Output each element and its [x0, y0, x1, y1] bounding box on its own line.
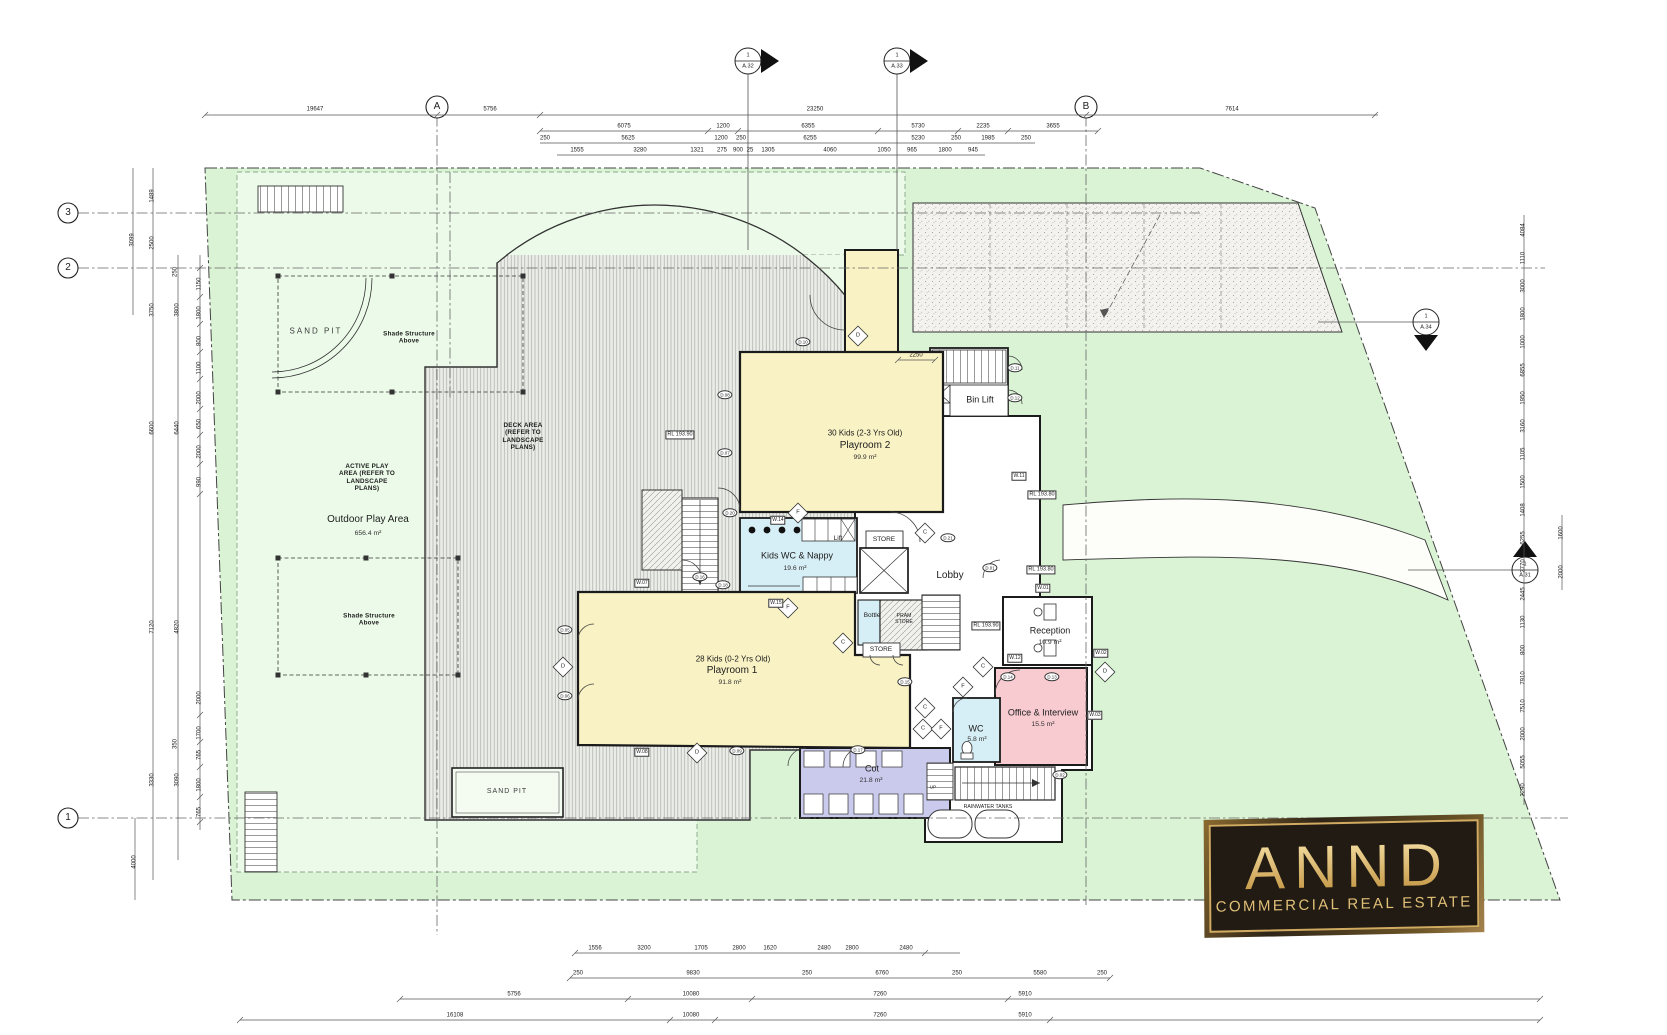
- door-tag: D.05: [557, 625, 572, 634]
- dimension-label: 2480: [817, 945, 830, 952]
- dimension-label: 1100: [196, 362, 203, 375]
- door-tag: D.02: [1052, 770, 1067, 779]
- grid-bubble-label: 1: [65, 812, 71, 824]
- window-tag: W.14: [770, 516, 785, 525]
- door-tag: D.11: [1008, 363, 1023, 372]
- door-tag: D.20: [722, 508, 737, 517]
- fixture-marker-label: F: [796, 510, 799, 517]
- dimension-label: 2250: [909, 352, 922, 359]
- dimension-label: 1305: [761, 147, 774, 154]
- dimension-label: 1555: [570, 147, 583, 154]
- plan-label: Bottle: [864, 612, 881, 620]
- room-label: Playroom 1: [707, 665, 758, 677]
- dimension-label: 765: [196, 807, 203, 817]
- fixture-marker-label: D: [1103, 669, 1107, 676]
- dimension-label: 7260: [873, 1012, 886, 1019]
- section-marker-label: 1: [895, 53, 898, 60]
- dimension-label: 10080: [683, 991, 700, 998]
- grid-bubble-label: 3: [65, 207, 71, 219]
- dimension-label: 250: [1021, 135, 1031, 142]
- dimension-label: 1600: [1558, 526, 1565, 539]
- fixture-marker-label: D: [561, 664, 565, 671]
- room-label: 656.4 m²: [355, 530, 382, 538]
- fixture-marker-label: D: [856, 333, 860, 340]
- plan-label: PRAM STORE: [895, 613, 913, 625]
- dimension-label: 3280: [633, 147, 646, 154]
- dimension-label: 800: [1520, 645, 1527, 655]
- dimension-label: 1130: [1520, 616, 1527, 629]
- dimension-label: 2000: [196, 445, 203, 458]
- dimension-label: 4084: [1520, 223, 1527, 236]
- room-label: 28 Kids (0-2 Yrs Old): [696, 654, 771, 663]
- grid-bubble-label: B: [1083, 101, 1090, 113]
- door-tag: D.17: [850, 745, 865, 754]
- window-tag: W.03: [1087, 711, 1102, 720]
- room-label: Outdoor Play Area: [327, 514, 409, 526]
- dimension-label: 19647: [307, 106, 324, 113]
- level-label: RL 193.80: [1027, 490, 1056, 499]
- dimension-label: 16108: [447, 1012, 464, 1019]
- fixture-marker-label: F: [786, 605, 789, 612]
- door-tag: D.16: [692, 572, 707, 581]
- plan-label: Shade Structure Above: [343, 613, 395, 628]
- level-label: RL 193.90: [971, 621, 1000, 630]
- dimension-label: 1620: [763, 945, 776, 952]
- window-tag: W.02: [1093, 649, 1108, 658]
- room-label: 30 Kids (2-3 Yrs Old): [828, 428, 903, 437]
- dimension-label: 10080: [683, 1012, 700, 1019]
- dimension-label: 3200: [637, 945, 650, 952]
- fixture-marker-label: D: [695, 750, 699, 757]
- section-marker-label: A.32: [742, 64, 754, 71]
- fixture-marker-label: C: [923, 530, 927, 537]
- dimension-label: 2480: [899, 945, 912, 952]
- window-tag: W.11: [1011, 472, 1026, 481]
- room-label: Lobby: [936, 570, 963, 582]
- dimension-label: 9830: [686, 970, 699, 977]
- room-label: 99.9 m²: [853, 454, 876, 462]
- dimension-label: 2000: [1520, 727, 1527, 740]
- dimension-label: 5580: [1033, 970, 1046, 977]
- plan-label: RAINWATER TANKS: [964, 804, 1013, 810]
- fixture-marker-label: C: [981, 664, 985, 671]
- dimension-label: 23250: [807, 106, 824, 113]
- dimension-label: 250: [540, 135, 550, 142]
- dimension-label: 2800: [732, 945, 745, 952]
- dimension-label: 5910: [1018, 991, 1031, 998]
- dimension-label: 5756: [483, 106, 496, 113]
- dimension-label: 4000: [131, 855, 138, 868]
- dimension-label: 5756: [507, 991, 520, 998]
- section-marker-label: A.31: [1519, 573, 1531, 580]
- dimension-label: 800: [196, 336, 203, 346]
- dimension-label: 3160: [1520, 419, 1527, 432]
- annd-logo-title: ANND: [1245, 837, 1451, 895]
- dimension-label: 5230: [911, 135, 924, 142]
- sand-pit-label: SAND PIT: [487, 788, 527, 796]
- dimension-label: 7260: [873, 991, 886, 998]
- door-tag: D.06: [557, 691, 572, 700]
- level-label: RL 193.90: [665, 430, 694, 439]
- dimension-label: 3000: [1520, 279, 1527, 292]
- fixture-marker-label: C: [921, 726, 925, 733]
- section-marker-label: 1: [1424, 314, 1427, 321]
- plan-label: Lift: [834, 535, 843, 543]
- dimension-label: 275: [717, 147, 727, 154]
- dimension-label: 1800: [196, 778, 203, 791]
- dimension-label: 6075: [617, 123, 630, 130]
- room-label: 5.8 m²: [967, 736, 986, 744]
- dimension-label: 1050: [877, 147, 890, 154]
- dimension-label: 5730: [911, 123, 924, 130]
- door-tag: D.07: [717, 448, 732, 457]
- plan-label: DECK AREA (REFER TO LANDSCAPE PLANS): [503, 422, 544, 452]
- dimension-label: 6440: [174, 421, 181, 434]
- dimension-label: 3655: [1046, 123, 1059, 130]
- dimension-label: 1200: [716, 123, 729, 130]
- dimension-label: 3090: [174, 773, 181, 786]
- dimension-label: 2000: [196, 391, 203, 404]
- room-label: 15.5 m²: [1031, 721, 1054, 729]
- dimension-label: 7120: [149, 620, 156, 633]
- fixture-marker-label: C: [841, 640, 845, 647]
- dimension-label: 2000: [1558, 565, 1565, 578]
- dimension-label: 250: [951, 135, 961, 142]
- plan-label: ACTIVE PLAY AREA (REFER TO LANDSCAPE PLA…: [339, 463, 395, 493]
- plan-label: STORE: [870, 646, 892, 654]
- dimension-label: 250: [1097, 970, 1107, 977]
- window-tag: W.12: [1007, 654, 1022, 663]
- dimension-label: 6255: [803, 135, 816, 142]
- dimension-label: 2235: [976, 123, 989, 130]
- dimension-label: 1000: [1520, 335, 1527, 348]
- dimension-label: 250: [573, 970, 583, 977]
- floor-plan-canvas: AB3211A.321A.331A.341A.3130 Kids (2-3 Yr…: [0, 0, 1667, 1035]
- dimension-label: 1200: [714, 135, 727, 142]
- dimension-label: 2500: [149, 236, 156, 249]
- dimension-label: 990: [196, 477, 203, 487]
- room-label: Bin Lift: [966, 395, 994, 406]
- door-tag: D.09: [729, 746, 744, 755]
- dimension-label: 4820: [174, 620, 181, 633]
- dimension-label: 2770: [1520, 559, 1527, 572]
- fixture-marker-label: F: [939, 726, 942, 733]
- dimension-label: 25: [747, 147, 754, 154]
- room-label: 91.8 m²: [718, 679, 741, 687]
- room-label: Office & Interview: [1008, 708, 1078, 719]
- dimension-label: 1105: [1520, 448, 1527, 461]
- door-tag: D.12: [1007, 393, 1022, 402]
- dimension-label: 6760: [875, 970, 888, 977]
- dimension-label: 1500: [1520, 475, 1527, 488]
- dimension-label: 1700: [196, 726, 203, 739]
- dimension-label: 3099: [129, 233, 136, 246]
- dimension-label: 965: [907, 147, 917, 154]
- dimension-label: 3800: [174, 303, 181, 316]
- annd-logo: ANND COMMERCIAL REAL ESTATE: [1204, 814, 1485, 938]
- dimension-label: 1110: [1520, 252, 1527, 264]
- dimension-label: 7510: [1520, 699, 1527, 712]
- dimension-label: 1800: [938, 147, 951, 154]
- door-tag: D.08: [717, 390, 732, 399]
- dimension-label: 7910: [1520, 671, 1527, 684]
- room-label: 10.9 m²: [1038, 639, 1061, 647]
- dimension-label: 1408: [1520, 503, 1527, 516]
- section-marker-label: 1: [1523, 562, 1526, 569]
- dimension-label: 250: [952, 970, 962, 977]
- dimension-label: 250: [802, 970, 812, 977]
- grid-bubble-label: 2: [65, 262, 71, 274]
- plan-label: UP: [930, 784, 936, 789]
- door-tag: D.01: [982, 563, 997, 572]
- room-label: 19.6 m²: [783, 565, 806, 573]
- dimension-label: 1489: [149, 189, 156, 202]
- dimension-label: 6255: [1520, 531, 1527, 544]
- dimension-label: 765: [196, 750, 203, 760]
- door-tag: D.18: [715, 580, 730, 589]
- dimension-label: 900: [733, 147, 743, 154]
- plan-label: STORE: [873, 536, 895, 544]
- dimension-label: 650: [196, 419, 203, 429]
- dimension-label: 2445: [1520, 587, 1527, 600]
- dimension-label: 1950: [1520, 391, 1527, 404]
- window-tag: W.01: [1035, 584, 1050, 593]
- window-tag: W.07: [634, 579, 649, 588]
- grid-bubble-label: A: [434, 101, 441, 113]
- dimension-label: 250: [736, 135, 746, 142]
- dimension-label: 3750: [149, 303, 156, 316]
- dimension-label: 1800: [196, 306, 203, 319]
- room-label: WC: [969, 724, 984, 735]
- room-label: Reception: [1030, 626, 1071, 637]
- dimension-label: 6600: [149, 421, 156, 434]
- level-label: RL 193.80: [1026, 565, 1055, 574]
- fixture-marker-label: C: [923, 705, 927, 712]
- dimension-label: 1556: [588, 945, 601, 952]
- section-marker-label: A.34: [1420, 325, 1432, 332]
- room-label: Cot: [865, 764, 879, 775]
- door-tag: D.14: [1000, 672, 1015, 681]
- room-label: Playroom 2: [840, 440, 891, 452]
- door-tag: D.15: [897, 677, 912, 686]
- dimension-label: 1985: [981, 135, 994, 142]
- sand-pit-label: SAND PIT: [290, 326, 343, 335]
- section-marker-label: 1: [746, 53, 749, 60]
- dimension-label: 1150: [196, 278, 203, 291]
- dimension-label: 1705: [694, 945, 707, 952]
- room-label: 21.8 m²: [859, 777, 882, 785]
- dimension-label: 5055: [1520, 755, 1527, 768]
- dimension-label: 6855: [1520, 363, 1527, 376]
- fixture-marker-label: F: [961, 684, 964, 691]
- dimension-label: 945: [968, 147, 978, 154]
- dimension-label: 5910: [1018, 1012, 1031, 1019]
- dimension-label: 4060: [823, 147, 836, 154]
- dimension-label: 250: [172, 267, 179, 277]
- window-tag: W.08: [634, 748, 649, 757]
- dimension-label: 6355: [801, 123, 814, 130]
- room-label: Kids WC & Nappy: [761, 551, 833, 562]
- section-marker-label: A.33: [891, 64, 903, 71]
- dimension-label: 3330: [149, 773, 156, 786]
- dimension-label: 7614: [1225, 106, 1238, 113]
- door-tag: D.21: [940, 533, 955, 542]
- plan-label: Shade Structure Above: [383, 331, 435, 346]
- door-tag: D.10: [795, 337, 810, 346]
- dimension-label: 1800: [1520, 307, 1527, 320]
- dimension-label: 5625: [621, 135, 634, 142]
- door-tag: D.13: [1044, 672, 1059, 681]
- dimension-label: 2290: [1520, 783, 1527, 796]
- dimension-label: 2800: [845, 945, 858, 952]
- dimension-label: 1321: [690, 147, 703, 154]
- dimension-label: 350: [172, 739, 179, 749]
- window-tag: W.15: [768, 599, 783, 608]
- annd-logo-frame: ANND COMMERCIAL REAL ESTATE: [1209, 819, 1480, 933]
- dimension-label: 2000: [196, 691, 203, 704]
